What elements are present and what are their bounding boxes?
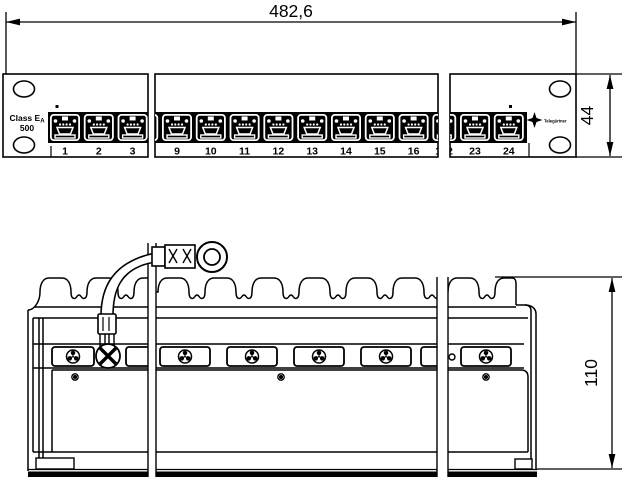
- brand-name: Telegärtner: [544, 119, 567, 124]
- class-rating-value: 500: [20, 123, 34, 133]
- port-number: 22: [441, 146, 453, 158]
- rear-part-left: [28, 278, 168, 477]
- brand-logo-icon: [527, 112, 543, 128]
- port-number: 3: [130, 146, 136, 158]
- mounting-hole: [550, 137, 571, 153]
- grounding-wire-assembly: [98, 242, 227, 334]
- lug-crimp-barrel: [165, 245, 195, 268]
- port-number: 24: [503, 146, 515, 158]
- dimension-rear-height: [495, 277, 622, 469]
- lug-neck: [152, 247, 165, 266]
- arrowhead-left-icon: [6, 19, 20, 26]
- port-number: 14: [340, 146, 352, 158]
- front-section-right-content: 22 23 24 Telegärtner: [427, 81, 570, 158]
- screw-icon: [67, 350, 80, 363]
- base-bar: [156, 472, 437, 478]
- width-dimension-label: 482,6: [269, 1, 313, 21]
- port-number: 16: [408, 146, 420, 158]
- arrowhead-down-icon: [609, 454, 616, 468]
- rear-part-middle: [156, 278, 471, 477]
- cable-comb: [448, 278, 516, 305]
- mounting-hole: [550, 81, 571, 97]
- mounting-hole: [14, 137, 35, 153]
- screw-icon: [179, 350, 192, 363]
- arrowhead-up-icon: [609, 278, 616, 292]
- base-bar: [28, 472, 148, 478]
- index-mark: [509, 105, 512, 108]
- port-number: 13: [306, 146, 318, 158]
- port-number: 9: [174, 146, 180, 158]
- port-number: 11: [239, 146, 250, 158]
- dimension-width: [6, 12, 576, 74]
- crimp-sleeve: [98, 314, 116, 334]
- index-mark: [56, 105, 59, 108]
- arrowhead-right-icon: [562, 19, 576, 26]
- front-section-left-content: Class EA 500 1 2 3: [9, 81, 148, 158]
- port-number: 23: [469, 146, 481, 158]
- port-number: 17: [435, 146, 447, 158]
- screw-hole-icon: [72, 374, 78, 380]
- front-section-middle-content: 9 10 11 12 13 14 15 16 17: [129, 112, 461, 158]
- front-height-dimension-label: 44: [577, 106, 597, 126]
- port-number: 2: [96, 146, 102, 158]
- screw-icon: [380, 350, 393, 363]
- port-number: 10: [205, 146, 217, 158]
- mounting-hole: [14, 81, 35, 97]
- module-housing-edge: [448, 370, 528, 452]
- screw-icon: [480, 350, 493, 363]
- screw-icon: [313, 350, 326, 363]
- rail-slot: [126, 347, 168, 366]
- base-bar: [448, 472, 537, 478]
- small-hole: [449, 354, 455, 360]
- rear-part-right: [448, 278, 537, 477]
- rear-height-dimension-label: 110: [581, 359, 601, 387]
- patch-panel-drawing: 482,6 Class EA 500 1 2 3: [0, 0, 626, 480]
- port-number: 12: [273, 146, 285, 158]
- arrowhead-down-icon: [607, 142, 614, 156]
- cable-comb: [156, 278, 440, 299]
- front-view: 482,6 Class EA 500 1 2 3: [3, 1, 622, 158]
- screw-hole-icon: [278, 374, 284, 380]
- mounting-foot: [515, 459, 532, 469]
- rear-view: 110: [28, 242, 622, 477]
- cable-comb: [28, 278, 148, 310]
- rail-slot: [421, 347, 471, 366]
- mounting-foot: [36, 458, 74, 469]
- technical-drawing-page: 482,6 Class EA 500 1 2 3: [0, 0, 626, 480]
- port-number: 15: [374, 146, 386, 158]
- screw-icon: [246, 350, 259, 363]
- arrowhead-up-icon: [607, 75, 614, 89]
- ring-terminal-hole: [204, 249, 220, 265]
- screw-hole-icon: [483, 374, 489, 380]
- port-number: 1: [62, 146, 68, 158]
